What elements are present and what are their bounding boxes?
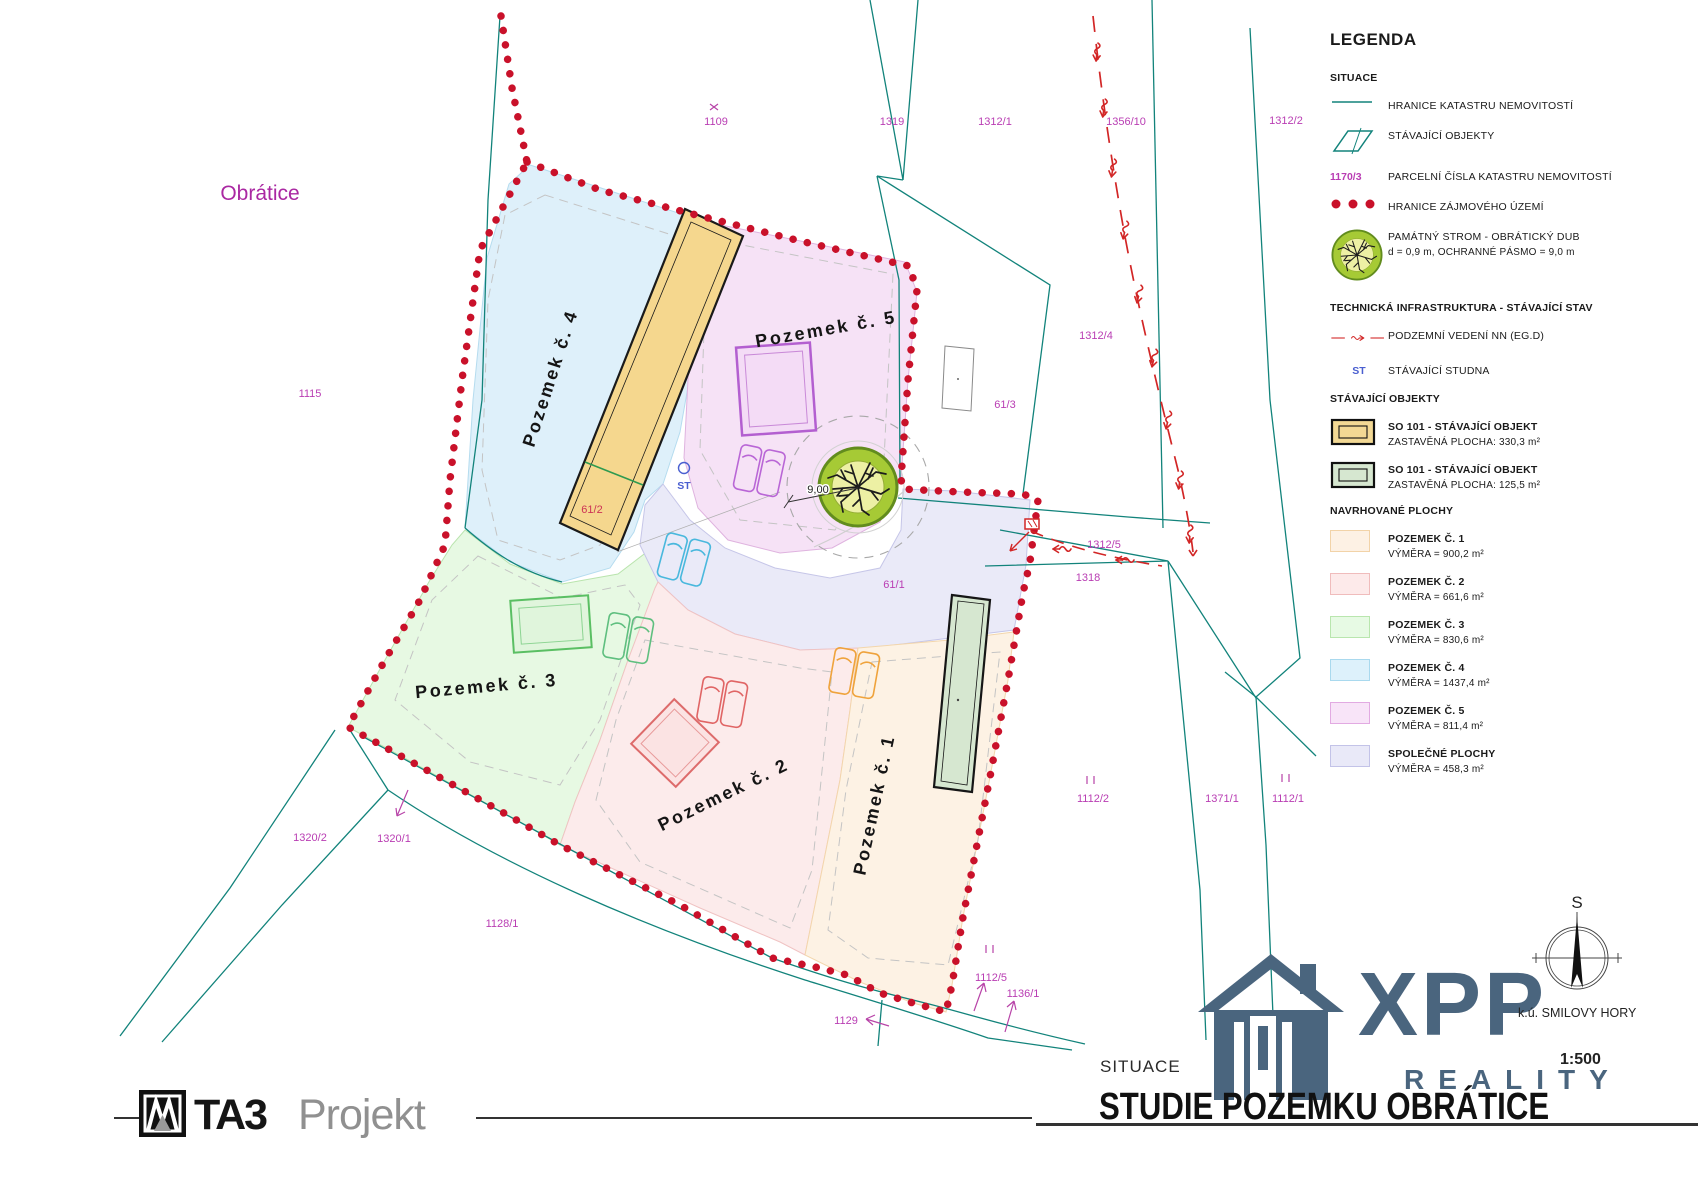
legend-item-parcel-numbers: 1170/3 PARCELNÍ ČÍSLA KATASTRU NEMOVITOS… xyxy=(1330,168,1686,185)
legend-item-memorial-tree: PAMÁTNÝ STROM - OBRÁTICKÝ DUB d = 0,9 m,… xyxy=(1330,228,1686,282)
cadastral-area-label: k.ú. SMILOVY HORY xyxy=(1518,1006,1636,1020)
legend-item-spolecne-plochy: SPOLEČNÉ PLOCHY VÝMĚRA = 458,3 m² xyxy=(1330,745,1686,775)
so101-green-icon xyxy=(1330,461,1388,489)
pozemek-5-swatch xyxy=(1330,702,1370,724)
legend-item-cadastre-line: HRANICE KATASTRU NEMOVITOSTÍ xyxy=(1330,97,1686,114)
proposed-building-pozemek3 xyxy=(510,595,591,652)
parcel-number: 61/1 xyxy=(883,579,904,591)
legend-item-cable: PODZEMNÍ VEDENÍ NN (EG.D) xyxy=(1330,327,1686,349)
cadastre-line-icon xyxy=(1330,97,1388,107)
legend-section-objekty: STÁVAJÍCÍ OBJEKTY xyxy=(1330,393,1686,405)
legend-item-well: ST STÁVAJÍCÍ STUDNA xyxy=(1330,362,1686,379)
parcel-number: 1129 xyxy=(834,1015,858,1027)
spolecne-plochy-swatch xyxy=(1330,745,1370,767)
existing-object-icon xyxy=(1330,127,1388,155)
legend-section-plochy: NAVRHOVANÉ PLOCHY xyxy=(1330,505,1686,517)
pozemek-3-swatch xyxy=(1330,616,1370,638)
legend-item-pozemek-1: POZEMEK Č. 1 VÝMĚRA = 900,2 m² xyxy=(1330,530,1686,560)
so101-tan-icon xyxy=(1330,418,1388,446)
parcel-number: 1356/10 xyxy=(1106,116,1146,128)
divider-line xyxy=(476,1117,1032,1119)
legend-item-existing-objects: STÁVAJÍCÍ OBJEKTY xyxy=(1330,127,1686,155)
well-label: ST xyxy=(677,480,691,492)
pozemek-2-swatch xyxy=(1330,573,1370,595)
memorial-tree-legend-icon xyxy=(1330,228,1388,282)
parcel-number: 1109 xyxy=(704,116,728,128)
parcel-number: 61/2 xyxy=(581,504,602,516)
dimension-label: 9,00 xyxy=(807,484,828,496)
well-symbol: ST xyxy=(1330,362,1388,377)
parcel-number-sample: 1170/3 xyxy=(1330,168,1388,183)
legend-item-so101-tan: SO 101 - STÁVAJÍCÍ OBJEKT ZASTAVĚNÁ PLOC… xyxy=(1330,418,1686,448)
parcel-number: 1319 xyxy=(880,116,904,128)
underground-cable-nn xyxy=(1010,16,1197,566)
egd-connection-box xyxy=(1025,519,1039,529)
legend-panel: LEGENDA SITUACE HRANICE KATASTRU NEMOVIT… xyxy=(1330,30,1686,788)
parcel-number: 1136/1 xyxy=(1007,988,1040,1000)
parcel-number: 1112/2 xyxy=(1077,793,1109,805)
legend-title: LEGENDA xyxy=(1330,30,1686,50)
title-underline xyxy=(1036,1123,1698,1126)
legend-section-tech: TECHNICKÁ INFRASTRUKTURA - STÁVAJÍCÍ STA… xyxy=(1330,302,1686,314)
divider-line xyxy=(114,1117,140,1119)
drawing-type-label: SITUACE xyxy=(1100,1057,1181,1077)
scale-label: 1:500 xyxy=(1560,1051,1601,1069)
building-61-3 xyxy=(942,346,974,411)
parcel-number: 1112/1 xyxy=(1272,793,1304,805)
pozemek-4-swatch xyxy=(1330,659,1370,681)
parcel-number: 1128/1 xyxy=(486,918,519,930)
parcel-number: 1320/2 xyxy=(293,832,327,844)
parcel-number: 1312/1 xyxy=(978,116,1012,128)
parcel-number: 1371/1 xyxy=(1205,793,1239,805)
legend-item-interest-boundary: HRANICE ZÁJMOVÉHO ÚZEMÍ xyxy=(1330,198,1686,215)
ta3-projekt-logo: TA3 Projekt xyxy=(138,1089,188,1149)
parcel-number: 1312/5 xyxy=(1087,539,1121,551)
parcel-number: 61/3 xyxy=(994,399,1015,411)
legend-item-pozemek-3: POZEMEK Č. 3 VÝMĚRA = 830,6 m² xyxy=(1330,616,1686,646)
legend-item-pozemek-4: POZEMEK Č. 4 VÝMĚRA = 1437,4 m² xyxy=(1330,659,1686,689)
ta3-logo-icon xyxy=(138,1089,188,1139)
ta3-logo-text: TA3 xyxy=(194,1091,266,1140)
legend-item-pozemek-5: POZEMEK Č. 5 VÝMĚRA = 811,4 m² xyxy=(1330,702,1686,732)
parcel-number: 1312/2 xyxy=(1269,115,1303,127)
north-compass: S xyxy=(1530,878,1624,1018)
interest-boundary-icon xyxy=(1330,198,1388,210)
cable-icon xyxy=(1330,327,1388,349)
compass-north-label: S xyxy=(1571,893,1582,912)
parcel-number: 1115 xyxy=(299,388,322,400)
site-plan-page: 9,00 ST xyxy=(0,0,1698,1200)
legend-section-situace: SITUACE xyxy=(1330,72,1686,84)
memorial-tree xyxy=(819,448,897,526)
pozemek-1-swatch xyxy=(1330,530,1370,552)
legend-item-pozemek-2: POZEMEK Č. 2 VÝMĚRA = 661,6 m² xyxy=(1330,573,1686,603)
parcel-number: 1112/5 xyxy=(975,972,1007,984)
parcel-number: 1312/4 xyxy=(1079,330,1113,342)
place-name-label: Obrátice xyxy=(220,182,299,205)
parcel-number: 1320/1 xyxy=(377,833,411,845)
parcel-number: 1318 xyxy=(1076,572,1100,584)
legend-item-so101-green: SO 101 - STÁVAJÍCÍ OBJEKT ZASTAVĚNÁ PLOC… xyxy=(1330,461,1686,491)
proposed-building-pozemek5 xyxy=(736,343,816,436)
ta3-logo-suffix: Projekt xyxy=(298,1091,425,1140)
